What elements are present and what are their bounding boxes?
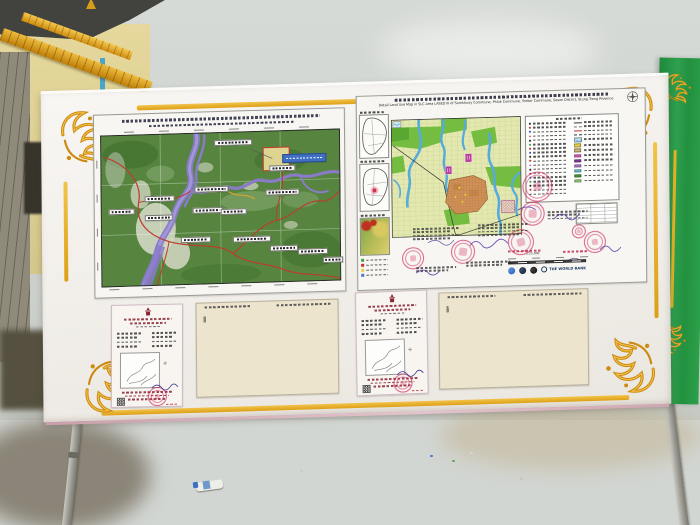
roof-finial	[86, 0, 96, 9]
coordinate-tick	[175, 287, 185, 289]
qr-code	[363, 385, 371, 393]
gold-border-line	[63, 182, 67, 282]
certificate-field	[397, 331, 418, 333]
coordinate-tick	[96, 195, 98, 203]
certificate-field	[362, 324, 382, 326]
ink-signature	[395, 367, 425, 378]
certificate-field	[152, 332, 178, 334]
national-emblem-icon	[144, 307, 152, 316]
map-place-label	[298, 248, 328, 255]
ground-debris	[430, 455, 433, 457]
pole-clamp	[68, 452, 80, 459]
coordinate-tick	[264, 127, 274, 129]
parcel-table	[204, 313, 340, 317]
north-cross-icon: ✛	[163, 361, 167, 367]
qr-code	[117, 398, 125, 406]
national-emblem-icon	[388, 294, 396, 303]
photo-scene: Detail Land Use Map in SLC Area LASED II…	[0, 0, 700, 525]
coordinate-tick	[124, 131, 134, 133]
map-place-label	[221, 208, 247, 215]
ground-debris	[300, 470, 303, 472]
certificate-field	[361, 319, 385, 321]
land-certificate-2: ✛	[355, 290, 429, 397]
certificate-field	[152, 336, 173, 338]
certificate-field	[117, 341, 141, 343]
map-place-label	[109, 209, 135, 216]
ground-debris	[520, 478, 523, 480]
certificate-field	[117, 346, 137, 348]
certificate-title	[374, 308, 410, 311]
land-certificate-1: ✛	[111, 304, 183, 408]
coordinate-tick	[229, 128, 239, 130]
certificate-number	[136, 326, 160, 328]
coordinate-tick	[96, 229, 98, 237]
bottle-label	[202, 481, 210, 490]
coordinate-tick	[142, 288, 152, 290]
bottle-cap	[193, 482, 199, 489]
certificate-field	[152, 345, 173, 347]
gold-border-line	[653, 142, 658, 318]
cloud	[380, 20, 600, 80]
coordinate-tick	[96, 161, 98, 169]
map-place-label	[145, 195, 175, 202]
serial-number	[412, 390, 425, 392]
coordinate-tick	[159, 130, 169, 132]
north-cross-icon: ✛	[408, 347, 412, 353]
scale-text: 1:25,000	[526, 252, 539, 256]
certificate-field	[117, 337, 137, 339]
coordinate-tick	[299, 126, 309, 128]
certificate-field	[362, 333, 382, 335]
parcel-table-document-2	[438, 288, 589, 389]
world-bank-label: THE WORLD BANK	[549, 266, 586, 271]
map-place-label	[214, 139, 252, 146]
map-place-label	[233, 236, 271, 243]
banner-gold-line	[670, 150, 676, 308]
world-bank-globe-icon	[541, 266, 547, 272]
doc-header-right	[277, 303, 331, 307]
map-place-label	[193, 207, 223, 214]
map-label-overlay	[94, 108, 347, 300]
certificate-number	[380, 312, 404, 314]
map-place-label	[194, 186, 228, 193]
map-place-label	[145, 214, 173, 221]
coordinate-tick	[208, 286, 218, 288]
left-map-panel	[93, 107, 346, 299]
ink-signatures	[357, 88, 649, 292]
coordinate-tick	[194, 129, 204, 131]
doc-header-right	[523, 292, 581, 296]
ground-debris	[452, 460, 455, 462]
parcel-table	[446, 302, 589, 306]
certificate-field	[397, 327, 423, 329]
gold-corner-ornament-icon	[591, 328, 660, 398]
ground-debris	[470, 452, 473, 454]
coordinate-tick	[97, 263, 99, 271]
parcel-table-document-1	[196, 299, 340, 398]
map-place-label	[269, 165, 295, 172]
coordinate-tick	[307, 283, 317, 285]
certificate-field	[152, 340, 178, 342]
coordinate-tick	[241, 285, 251, 287]
doc-header-left	[447, 295, 495, 298]
certificate-field	[396, 322, 417, 324]
coordinate-tick	[274, 284, 284, 286]
certificate-field	[396, 318, 422, 320]
map-place-label	[181, 236, 211, 243]
certificate-title	[130, 322, 166, 325]
serial-number	[166, 404, 179, 406]
map-place-label	[323, 256, 343, 263]
certificate-field	[117, 332, 141, 334]
land-use-notice-board: Detail Land Use Map in SLC Area LASED II…	[41, 73, 672, 423]
slc-area-label	[282, 153, 326, 163]
right-map-panel: Detail Land Use Map in SLC Area LASED II…	[356, 87, 648, 291]
map-place-label	[266, 189, 300, 196]
doc-header-left	[205, 305, 251, 308]
coordinate-tick	[109, 289, 119, 291]
certificate-title	[124, 318, 172, 321]
map-place-label	[270, 245, 298, 252]
ink-signature	[150, 381, 180, 392]
certificate-field	[362, 328, 386, 330]
